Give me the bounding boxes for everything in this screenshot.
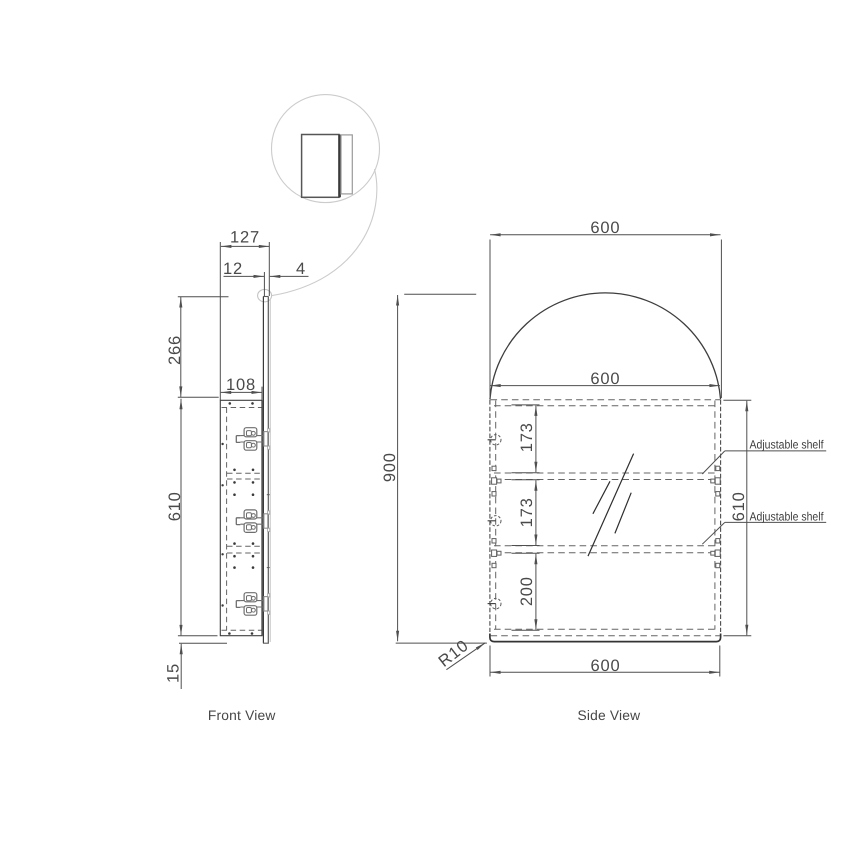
svg-text:15: 15 bbox=[165, 663, 183, 683]
svg-text:Adjustable shelf: Adjustable shelf bbox=[750, 509, 825, 523]
svg-text:610: 610 bbox=[730, 491, 748, 521]
svg-text:Adjustable shelf: Adjustable shelf bbox=[750, 438, 825, 452]
svg-text:900: 900 bbox=[381, 452, 399, 482]
svg-text:200: 200 bbox=[518, 576, 536, 606]
svg-text:108: 108 bbox=[226, 376, 256, 394]
svg-text:R10: R10 bbox=[435, 637, 472, 671]
svg-text:173: 173 bbox=[518, 497, 536, 527]
svg-text:127: 127 bbox=[230, 229, 260, 247]
svg-text:Front View: Front View bbox=[208, 708, 276, 723]
svg-text:173: 173 bbox=[518, 422, 536, 452]
svg-text:Side View: Side View bbox=[577, 708, 640, 723]
svg-text:4: 4 bbox=[296, 260, 306, 278]
svg-text:12: 12 bbox=[223, 260, 243, 278]
